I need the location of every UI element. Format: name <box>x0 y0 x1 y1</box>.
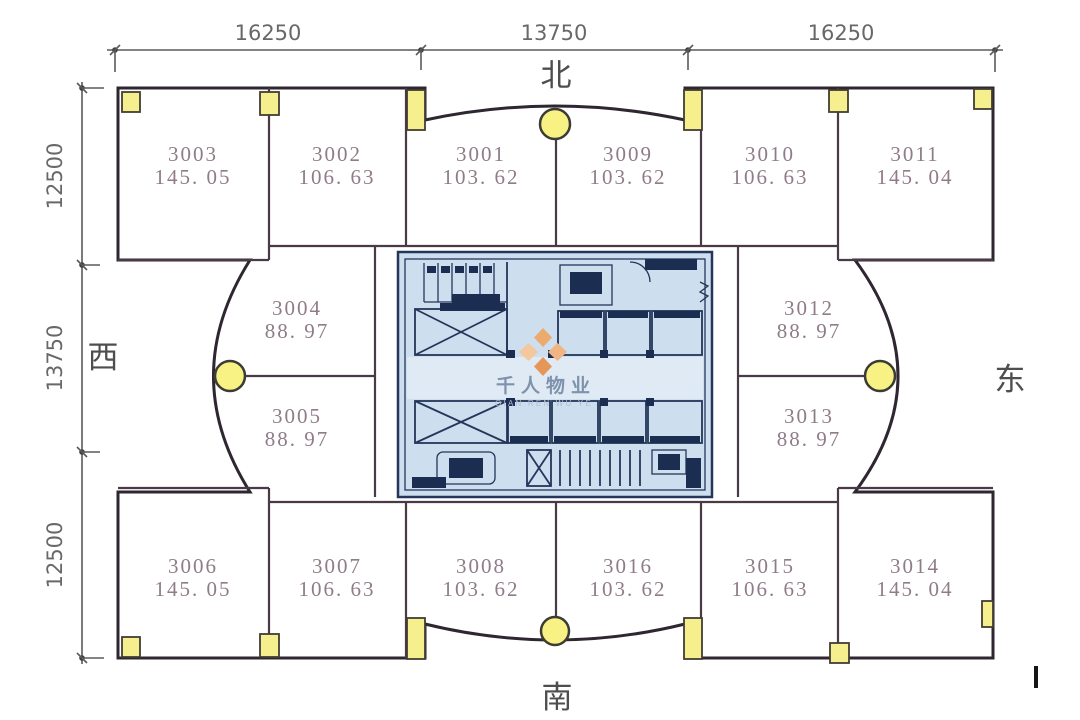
column-marker <box>982 601 993 627</box>
compass-north-label: 北 <box>541 58 572 94</box>
room-3001: 3001 103. 62 <box>443 142 520 189</box>
room-area: 106. 63 <box>732 577 809 601</box>
room-number: 3003 <box>168 142 218 166</box>
room-number: 3014 <box>890 554 940 578</box>
room-area: 103. 62 <box>443 165 520 189</box>
dimension-label-top-2: 13750 <box>521 21 588 45</box>
round-pier-east <box>865 361 895 391</box>
column-marker <box>122 637 140 657</box>
room-number: 3008 <box>456 554 506 578</box>
room-number: 3002 <box>312 142 362 166</box>
room-number: 3005 <box>272 404 322 428</box>
compass-east-label: 东 <box>995 362 1026 398</box>
room-number: 3007 <box>312 554 362 578</box>
dimension-label-left-1: 12500 <box>43 143 67 210</box>
column-marker <box>974 89 992 109</box>
column-marker <box>407 90 425 130</box>
room-number: 3013 <box>784 404 834 428</box>
room-number: 3004 <box>272 296 322 320</box>
room-3004: 3004 88. 97 <box>265 296 330 343</box>
room-number: 3001 <box>456 142 506 166</box>
room-area: 106. 63 <box>299 577 376 601</box>
round-pier-west <box>215 361 245 391</box>
room-3005: 3005 88. 97 <box>265 404 330 451</box>
column-marker <box>122 92 140 112</box>
room-3010: 3010 106. 63 <box>732 142 809 189</box>
watermark-subtitle: QIAN REN WU YE <box>495 399 593 408</box>
room-3002: 3002 106. 63 <box>299 142 376 189</box>
column-marker <box>684 618 702 659</box>
room-3016: 3016 103. 62 <box>590 554 667 601</box>
room-number: 3016 <box>603 554 653 578</box>
room-area: 88. 97 <box>777 427 842 451</box>
dimension-label-top-1: 16250 <box>235 21 302 45</box>
room-area: 145. 05 <box>155 165 232 189</box>
column-marker <box>684 90 702 130</box>
room-area: 106. 63 <box>732 165 809 189</box>
room-area: 106. 63 <box>299 165 376 189</box>
compass-west-label: 西 <box>88 340 119 376</box>
room-area: 145. 04 <box>877 577 954 601</box>
room-3009: 3009 103. 62 <box>590 142 667 189</box>
column-marker <box>830 643 849 663</box>
room-area: 145. 04 <box>877 165 954 189</box>
watermark-name: 千人物业 <box>496 374 596 397</box>
room-number: 3009 <box>603 142 653 166</box>
dimension-label-left-3: 12500 <box>43 522 67 589</box>
compass-south-label: 南 <box>542 680 573 716</box>
room-area: 103. 62 <box>443 577 520 601</box>
room-3012: 3012 88. 97 <box>777 296 842 343</box>
room-area: 88. 97 <box>265 427 330 451</box>
room-number: 3010 <box>745 142 795 166</box>
room-area: 103. 62 <box>590 577 667 601</box>
room-area: 145. 05 <box>155 577 232 601</box>
room-number: 3012 <box>784 296 834 320</box>
room-area: 88. 97 <box>777 319 842 343</box>
room-3011: 3011 145. 04 <box>877 142 954 189</box>
room-number: 3006 <box>168 554 218 578</box>
room-3013: 3013 88. 97 <box>777 404 842 451</box>
room-3008: 3008 103. 62 <box>443 554 520 601</box>
floor-plan-svg: 16250 13750 16250 12500 13750 12500 北 南 … <box>0 0 1080 720</box>
round-pier-south <box>541 617 569 645</box>
column-marker <box>260 92 279 115</box>
room-3007: 3007 106. 63 <box>299 554 376 601</box>
room-number: 3015 <box>745 554 795 578</box>
scan-artifact-mark <box>1034 666 1038 688</box>
room-3014: 3014 145. 04 <box>877 554 954 601</box>
room-3006: 3006 145. 05 <box>155 554 232 601</box>
room-area: 103. 62 <box>590 165 667 189</box>
floor-plan-canvas: 16250 13750 16250 12500 13750 12500 北 南 … <box>0 0 1080 720</box>
dimension-label-top-3: 16250 <box>808 21 875 45</box>
column-marker <box>260 634 279 657</box>
round-pier-north <box>540 109 570 139</box>
dimension-label-left-2: 13750 <box>43 325 67 392</box>
room-3015: 3015 106. 63 <box>732 554 809 601</box>
column-marker <box>829 90 848 112</box>
room-area: 88. 97 <box>265 319 330 343</box>
column-marker <box>407 618 425 659</box>
room-number: 3011 <box>890 142 939 166</box>
room-3003: 3003 145. 05 <box>155 142 232 189</box>
